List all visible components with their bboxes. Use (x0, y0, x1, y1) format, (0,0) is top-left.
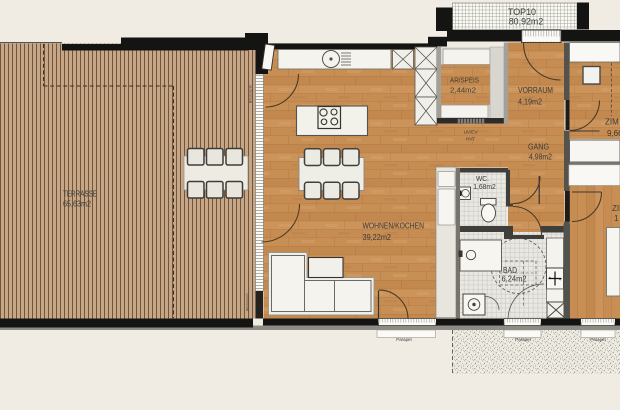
svg-text:AR/SPEIS: AR/SPEIS (450, 78, 479, 85)
svg-text:Brüstung 90: Brüstung 90 (249, 85, 253, 103)
svg-text:39,22m2: 39,22m2 (363, 233, 392, 242)
svg-text:65,63m2: 65,63m2 (63, 200, 91, 209)
svg-text:6,24m2: 6,24m2 (502, 275, 528, 284)
svg-text:4,19m2: 4,19m2 (518, 98, 542, 107)
svg-text:2,44m2: 2,44m2 (450, 88, 476, 95)
svg-text:TOP10: TOP10 (508, 7, 536, 17)
svg-text:Absturzsich.: Absturzsich. (246, 292, 250, 311)
svg-text:Parapet: Parapet (396, 337, 412, 342)
svg-text:4,98m2: 4,98m2 (529, 153, 552, 162)
svg-text:GANG: GANG (528, 143, 549, 152)
svg-text:Parapet: Parapet (515, 337, 531, 342)
svg-text:1: 1 (614, 214, 619, 223)
svg-text:WC.: WC. (476, 176, 489, 183)
svg-text:1,68m2: 1,68m2 (473, 184, 496, 191)
svg-text:Parapet: Parapet (590, 337, 606, 342)
svg-text:VORRAUM: VORRAUM (518, 86, 553, 95)
svg-text:9,66: 9,66 (607, 129, 620, 138)
svg-text:ZIM: ZIM (605, 118, 619, 127)
svg-text:TERRASSE: TERRASSE (63, 190, 97, 199)
svg-text:HVT: HVT (466, 137, 475, 142)
svg-text:UV/EV: UV/EV (464, 130, 479, 135)
svg-text:80,92m2: 80,92m2 (509, 17, 544, 27)
svg-text:ZIM: ZIM (612, 204, 620, 213)
svg-text:WOHNEN/KOCHEN: WOHNEN/KOCHEN (363, 222, 425, 231)
